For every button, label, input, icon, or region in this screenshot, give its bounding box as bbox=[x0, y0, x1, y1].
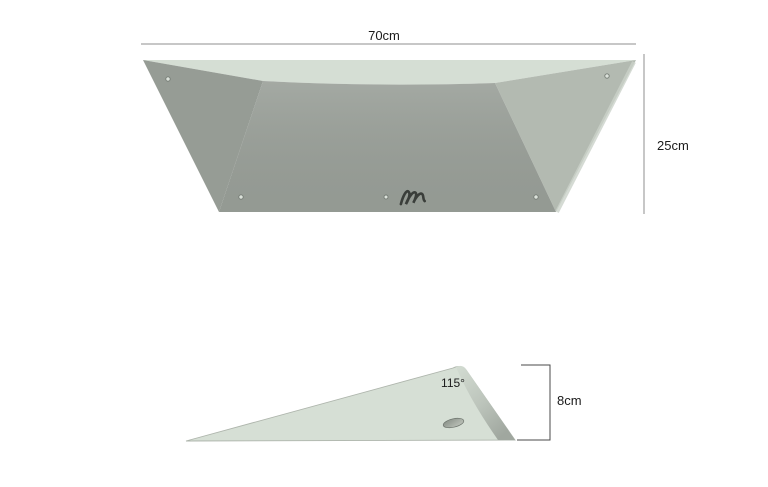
mounting-hole bbox=[534, 195, 538, 199]
mounting-hole bbox=[239, 195, 243, 199]
height-dimension-label: 25cm bbox=[657, 138, 689, 153]
product-dimension-diagram: 70cm 25cm bbox=[0, 0, 768, 487]
mounting-hole bbox=[166, 77, 170, 81]
side-height-bracket bbox=[517, 365, 550, 440]
mounting-hole bbox=[384, 195, 388, 199]
mounting-hole bbox=[605, 74, 609, 78]
side-view: 115° 8cm bbox=[186, 365, 582, 441]
width-dimension-label: 70cm bbox=[368, 28, 400, 43]
side-height-label: 8cm bbox=[557, 393, 582, 408]
diagram-svg: 70cm 25cm bbox=[0, 0, 768, 487]
top-view: 70cm 25cm bbox=[141, 28, 689, 214]
angle-label: 115° bbox=[441, 376, 465, 390]
